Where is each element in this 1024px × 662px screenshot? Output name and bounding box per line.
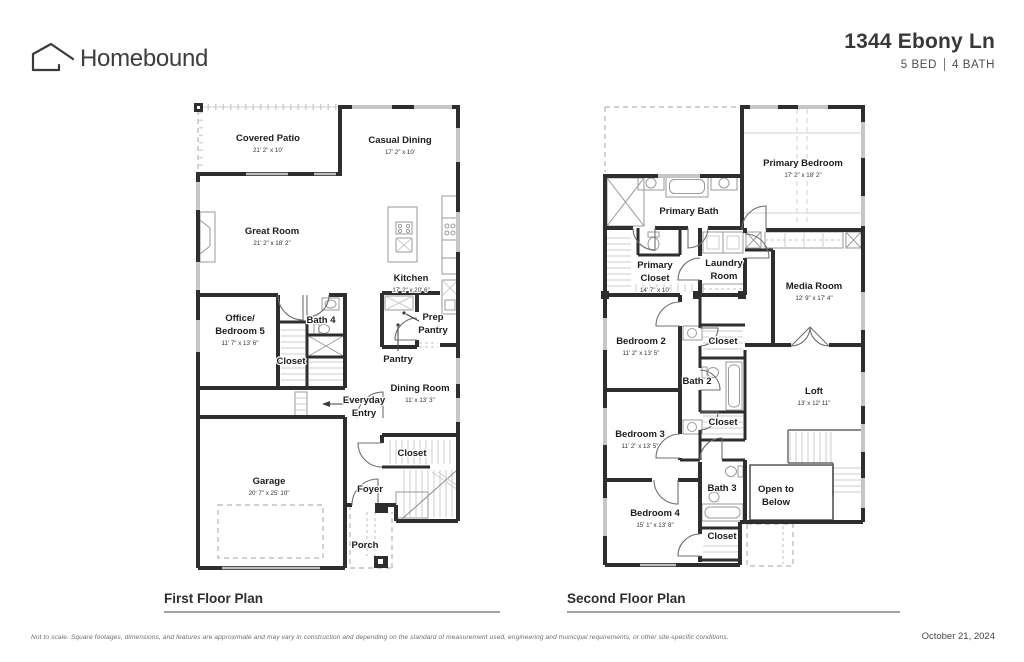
room-label-prep-pantry-2: Pantry [418, 325, 448, 336]
room-label-covered-patio: Covered Patio [236, 133, 300, 144]
room-labels-floor2: Primary Bedroom 17' 2" x 18' 2" Primary … [615, 158, 843, 542]
page-title: 1344 Ebony Ln [844, 30, 995, 54]
second-floor-plan-figure: Primary Bedroom 17' 2" x 18' 2" Primary … [555, 95, 905, 600]
room-label-porch: Porch [352, 540, 379, 551]
room-label-primary-bath: Primary Bath [659, 206, 718, 217]
room-label-bath3: Bath 3 [707, 483, 736, 494]
walls-layer-floor2 [605, 105, 863, 565]
date-stamp: October 21, 2024 [922, 631, 995, 642]
room-label-prep-pantry-1: Prep [422, 312, 443, 323]
room-label-loft: Loft [805, 386, 824, 397]
spec-divider [944, 58, 945, 71]
room-dims-garage: 20' 7" x 25' 10" [249, 490, 290, 497]
first-floor-plan-figure: Covered Patio 21' 2" x 10' Casual Dining… [150, 95, 500, 600]
bed-count: 5 BED [901, 59, 937, 71]
second-floor-caption: Second Floor Plan [567, 591, 900, 613]
room-label-bath2: Bath 2 [682, 376, 711, 387]
room-label-laundry-2: Room [711, 271, 738, 282]
room-label-primary-bedroom: Primary Bedroom [763, 158, 843, 169]
room-label-casual-dining: Casual Dining [368, 135, 432, 146]
room-label-closet-office: Closet [276, 356, 306, 367]
bath-count: 4 BATH [952, 59, 995, 71]
room-label-bedroom3: Bedroom 3 [615, 429, 665, 440]
room-label-bedroom2: Bedroom 2 [616, 336, 666, 347]
room-label-open-below-2: Below [762, 497, 791, 508]
bed-bath-specs: 5 BED 4 BATH [844, 58, 995, 71]
porch-posts [374, 503, 388, 568]
room-label-dining-room: Dining Room [390, 383, 449, 394]
room-label-bedroom4: Bedroom 4 [630, 508, 680, 519]
room-label-laundry-1: Laundry [705, 258, 743, 269]
room-dims-covered-patio: 21' 2" x 10' [253, 147, 283, 154]
room-dims-office: 11' 7" x 13' 6" [222, 340, 259, 347]
room-label-office-2: Bedroom 5 [215, 326, 265, 337]
room-label-foyer: Foyer [357, 484, 383, 495]
house-icon [31, 42, 75, 72]
windows-layer-floor1 [198, 107, 458, 568]
room-dims-primary-bedroom: 17' 2" x 18' 2" [784, 172, 821, 179]
room-dims-primary-closet: 14' 7" x 10' [640, 287, 670, 294]
room-label-closet-b4: Closet [707, 531, 737, 542]
room-dims-great-room: 21' 2" x 18' 2" [253, 240, 290, 247]
room-label-pantry: Pantry [383, 354, 413, 365]
room-dims-kitchen: 17' 2" x 20' 6" [392, 287, 429, 294]
room-dims-loft: 13' x 12' 11" [798, 400, 831, 407]
room-label-closet-foyer: Closet [397, 448, 427, 459]
room-label-garage: Garage [253, 476, 286, 487]
room-dims-casual-dining: 17' 2" x 10' [385, 149, 415, 156]
room-dims-bedroom2: 11' 2" x 13' 5" [623, 350, 660, 357]
room-label-bath4: Bath 4 [306, 315, 336, 326]
room-dims-dining-room: 11' x 13' 3" [405, 397, 435, 404]
room-label-closet-b2: Closet [708, 336, 738, 347]
homebound-logo: Homebound [31, 42, 208, 72]
room-label-office-1: Office/ [225, 313, 255, 324]
room-dims-bedroom4: 15' 1" x 13' 8" [636, 522, 673, 529]
first-floor-caption: First Floor Plan [164, 591, 500, 613]
room-label-everyday-2: Entry [352, 408, 377, 419]
floorplan-page: { "header": { "brand": "Homebound", "add… [0, 0, 1024, 662]
room-label-kitchen: Kitchen [394, 273, 429, 284]
brand-name: Homebound [80, 46, 208, 72]
room-label-primary-closet-2: Closet [640, 273, 670, 284]
header-address-block: 1344 Ebony Ln 5 BED 4 BATH [844, 30, 995, 71]
room-label-open-below-1: Open to [758, 484, 794, 495]
room-dims-media-room: 12' 9" x 17' 4" [795, 295, 832, 302]
room-label-media-room: Media Room [786, 281, 842, 292]
room-label-closet-b3: Closet [708, 417, 738, 428]
room-label-great-room: Great Room [245, 226, 299, 237]
room-label-everyday-1: Everyday [343, 395, 386, 406]
room-label-primary-closet-1: Primary [637, 260, 673, 271]
room-dims-bedroom3: 11' 2" x 13' 5" [622, 443, 659, 450]
disclaimer-text: Not to scale. Square footages, dimension… [31, 634, 791, 641]
